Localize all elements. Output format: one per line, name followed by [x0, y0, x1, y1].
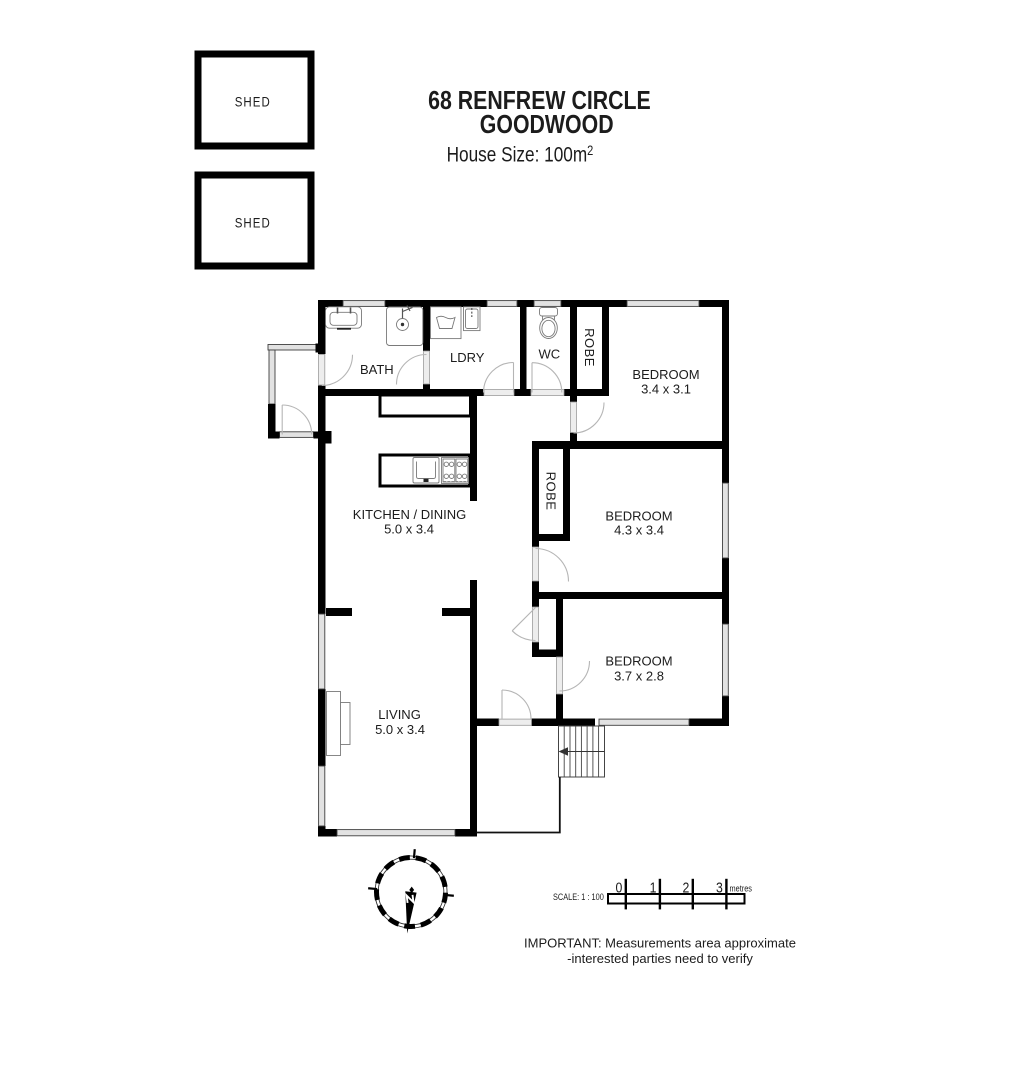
svg-text:-interested parties need to ve: -interested parties need to verify	[567, 951, 753, 966]
svg-text:LIVING: LIVING	[378, 707, 421, 722]
svg-text:BATH: BATH	[360, 362, 394, 377]
svg-text:3.7 x 2.8: 3.7 x 2.8	[614, 669, 664, 684]
svg-text:SHED: SHED	[235, 214, 271, 230]
svg-text:ROBE: ROBE	[544, 472, 559, 511]
svg-text:IMPORTANT: Measurements area a: IMPORTANT: Measurements area approximate	[524, 936, 796, 951]
svg-text:KITCHEN / DINING: KITCHEN / DINING	[353, 507, 466, 522]
svg-text:GOODWOOD: GOODWOOD	[480, 110, 614, 140]
svg-text:metres: metres	[729, 884, 752, 894]
svg-text:0: 0	[615, 879, 622, 895]
svg-text:SHED: SHED	[235, 93, 271, 109]
svg-text:2: 2	[682, 879, 689, 895]
svg-text:LDRY: LDRY	[450, 350, 485, 365]
svg-text:1: 1	[650, 879, 657, 895]
svg-text:ROBE: ROBE	[582, 328, 597, 367]
svg-text:BEDROOM: BEDROOM	[605, 654, 672, 669]
svg-text:5.0 x 3.4: 5.0 x 3.4	[384, 522, 434, 537]
svg-text:BEDROOM: BEDROOM	[605, 509, 672, 524]
svg-text:WC: WC	[538, 347, 560, 362]
svg-text:3.4 x 3.1: 3.4 x 3.1	[641, 382, 691, 397]
svg-text:BEDROOM: BEDROOM	[632, 367, 699, 382]
svg-text:4.3 x 3.4: 4.3 x 3.4	[614, 523, 664, 538]
svg-text:3: 3	[716, 879, 723, 895]
svg-text:SCALE: 1 : 100: SCALE: 1 : 100	[553, 892, 604, 902]
svg-text:5.0 x 3.4: 5.0 x 3.4	[375, 722, 425, 737]
svg-text:House Size: 100m2: House Size: 100m2	[447, 143, 594, 167]
